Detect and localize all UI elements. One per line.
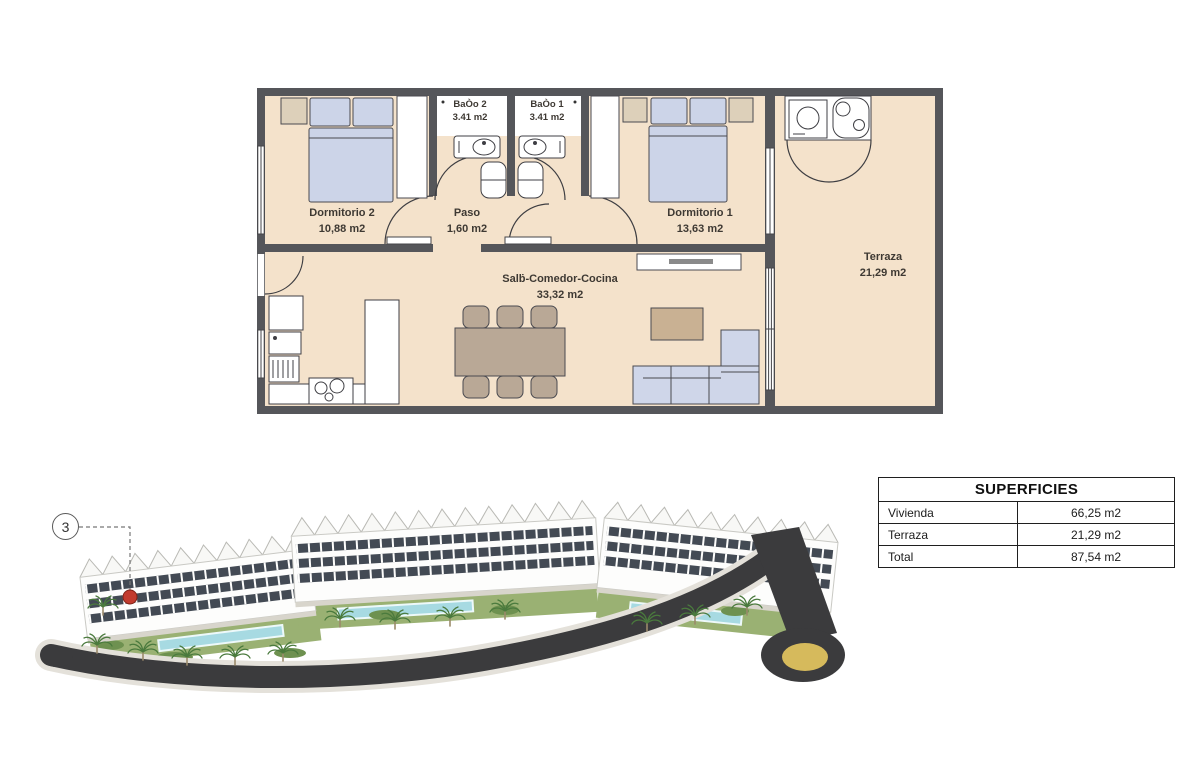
- floor-plan-drawing: [257, 88, 943, 414]
- chair-icon: [463, 376, 489, 398]
- building-block-2: [290, 500, 600, 607]
- wardrobe-icon: [591, 96, 619, 198]
- toilet-icon: [481, 162, 506, 198]
- unit-marker-badge: 3: [52, 513, 79, 540]
- table-row: Total 87,54 m2: [879, 546, 1174, 567]
- washbasin-icon: [454, 136, 500, 158]
- unit-marker-label: 3: [62, 519, 70, 535]
- utility-sink-icon: [833, 98, 869, 138]
- roundabout-center: [782, 643, 828, 671]
- entrance-opening: [258, 254, 264, 296]
- coffee-table-icon: [651, 308, 703, 340]
- nightstand-icon: [281, 98, 307, 124]
- unit-location-dot: [123, 590, 137, 604]
- row-value: 87,54 m2: [1018, 546, 1174, 567]
- fridge-icon: [269, 296, 303, 330]
- dining-table-icon: [455, 306, 565, 398]
- superficies-table: SUPERFICIES Vivienda 66,25 m2 Terraza 21…: [878, 477, 1175, 568]
- chair-icon: [531, 306, 557, 328]
- row-label: Total: [879, 546, 1018, 567]
- table-row: Terraza 21,29 m2: [879, 524, 1174, 546]
- bathroom-1-floor: [515, 96, 581, 136]
- terrace-utility: [785, 96, 871, 140]
- site-render-image: [35, 485, 845, 700]
- row-value: 66,25 m2: [1018, 502, 1174, 523]
- table-row: Vivienda 66,25 m2: [879, 502, 1174, 524]
- row-value: 21,29 m2: [1018, 524, 1174, 545]
- bathroom-2-floor: [437, 96, 507, 136]
- ceiling-light-icon: [442, 101, 445, 104]
- chair-icon: [497, 306, 523, 328]
- washing-machine-icon: [789, 100, 827, 138]
- chair-icon: [531, 376, 557, 398]
- washbasin-icon: [519, 136, 565, 158]
- toilet-icon: [518, 162, 543, 198]
- row-label: Vivienda: [879, 502, 1018, 523]
- nightstand-icon: [729, 98, 753, 122]
- wardrobe-icon: [397, 96, 427, 198]
- row-label: Terraza: [879, 524, 1018, 545]
- floor-plan: Dormitorio 2 10,88 m2 BaÒo 2 3.41 m2 BaÒ…: [257, 88, 943, 414]
- chair-icon: [497, 376, 523, 398]
- ceiling-light-icon: [574, 101, 577, 104]
- nightstand-icon: [623, 98, 647, 122]
- tv-unit-icon: [637, 254, 741, 270]
- site-render: 3: [35, 485, 845, 700]
- chair-icon: [463, 306, 489, 328]
- kitchen-island: [365, 300, 399, 404]
- kitchen-sink-icon: [269, 332, 301, 354]
- stove-icon: [309, 378, 353, 404]
- superficies-table-title: SUPERFICIES: [879, 478, 1174, 502]
- drainer-icon: [269, 356, 299, 382]
